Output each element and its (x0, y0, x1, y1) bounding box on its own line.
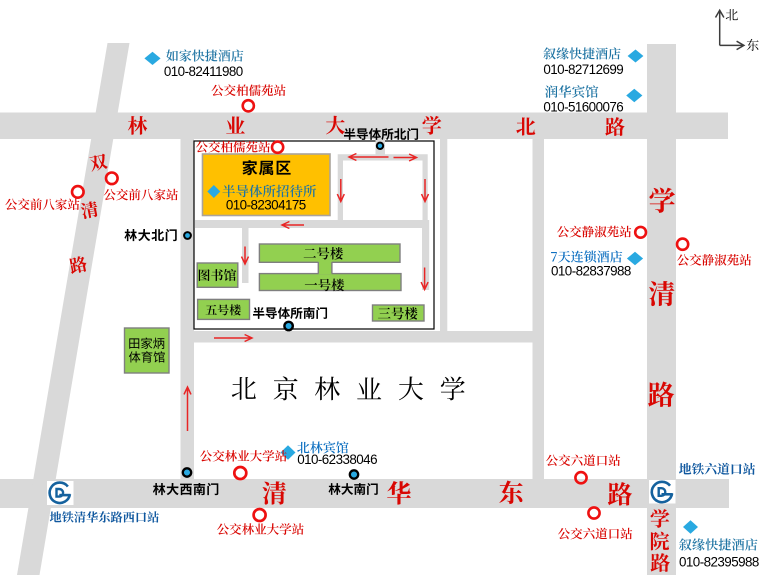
svg-text:010-62338046: 010-62338046 (297, 452, 377, 467)
svg-text:010-82395988: 010-82395988 (679, 555, 759, 570)
svg-text:010-51600076: 010-51600076 (543, 100, 623, 115)
svg-text:010-82304175: 010-82304175 (226, 197, 306, 212)
svg-text:010-82411980: 010-82411980 (164, 64, 243, 79)
svg-text:010-82837988: 010-82837988 (551, 263, 631, 278)
svg-text:010-82712699: 010-82712699 (543, 62, 623, 77)
